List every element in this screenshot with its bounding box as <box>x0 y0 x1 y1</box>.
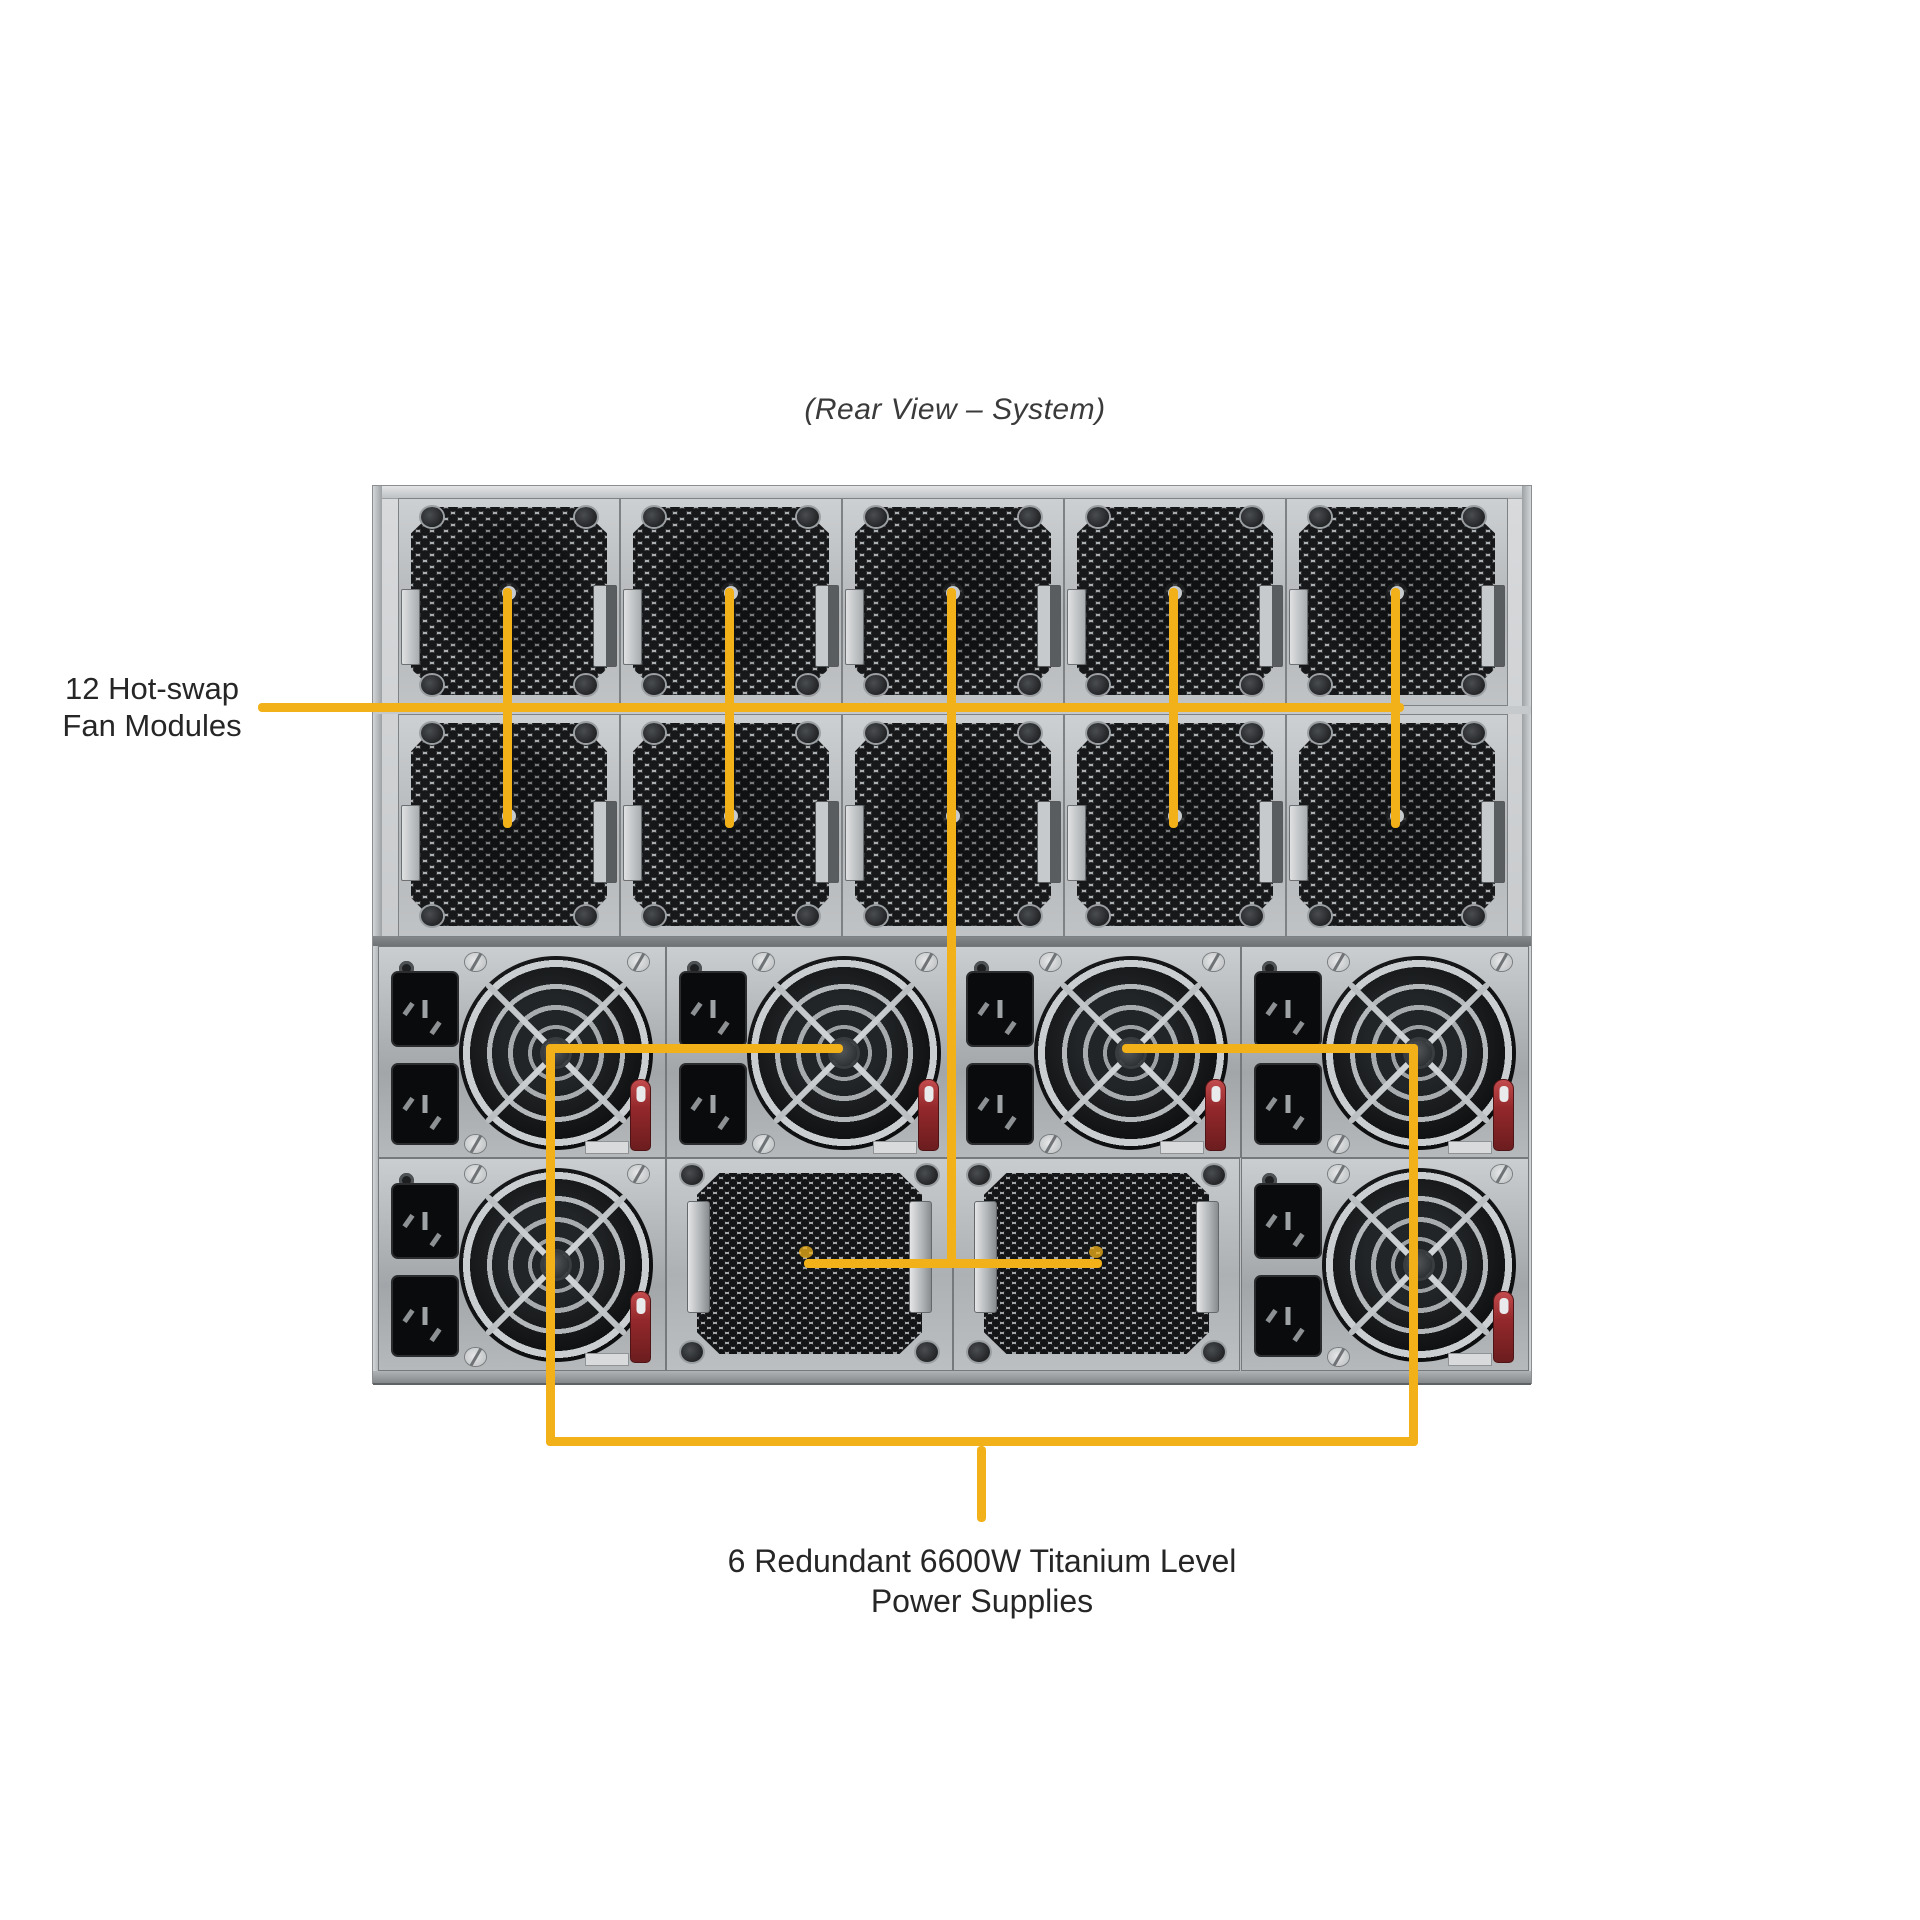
callout-psu-hline-right <box>1122 1044 1418 1053</box>
psu-fan <box>1322 1168 1516 1362</box>
screw-icon <box>968 1342 990 1362</box>
screw-icon <box>968 1165 990 1185</box>
screw-icon <box>643 723 665 743</box>
fan-modules-label-line2: Fan Modules <box>37 707 267 744</box>
power-inlet <box>391 1183 459 1259</box>
screw-icon <box>681 1342 703 1362</box>
fan-handle <box>1259 801 1283 883</box>
power-inlet <box>679 1063 747 1145</box>
fan-handle <box>1037 585 1061 667</box>
psu-release-tab <box>1493 1079 1514 1151</box>
psu-release-tab <box>630 1079 651 1151</box>
diagram-title: (Rear View – System) <box>560 393 1350 427</box>
screw-icon <box>1087 906 1109 926</box>
power-inlet <box>1254 1183 1322 1259</box>
fan-latch <box>1067 805 1086 881</box>
power-supply-module <box>1241 1158 1529 1371</box>
thumbscrew-icon <box>1328 1135 1349 1153</box>
power-inlet <box>1254 1063 1322 1145</box>
thumbscrew-icon <box>1328 953 1349 971</box>
screw-icon <box>643 507 665 527</box>
screw-icon <box>575 906 597 926</box>
screw-icon <box>1241 723 1263 743</box>
module-handle <box>1196 1201 1219 1313</box>
fan-latch <box>1289 589 1308 665</box>
screw-icon <box>681 1165 703 1185</box>
fan-handle <box>593 801 617 883</box>
callout-psu-vline-right <box>1409 1044 1418 1446</box>
screw-icon <box>1019 507 1041 527</box>
screw-icon <box>1019 675 1041 695</box>
rear-view-diagram-page: (Rear View – System) 12 Hot-swap Fan Mod… <box>0 0 1920 1920</box>
callout-fan-vline-2 <box>725 588 734 828</box>
psu-fan <box>459 956 653 1150</box>
callout-screw-dot-right <box>1089 1246 1103 1258</box>
fan-modules-label-line1: 12 Hot-swap <box>37 670 267 707</box>
psu-label-sticker <box>585 1353 629 1366</box>
module-handle <box>974 1201 997 1313</box>
callout-screw-dot-left <box>799 1246 813 1258</box>
screw-icon <box>1463 507 1485 527</box>
thumbscrew-icon <box>1491 1165 1512 1183</box>
screw-icon <box>1241 507 1263 527</box>
thumbscrew-icon <box>465 1348 486 1366</box>
psu-fan <box>459 1168 653 1362</box>
screw-icon <box>1203 1165 1225 1185</box>
power-inlet <box>391 1063 459 1145</box>
power-inlet <box>966 971 1034 1047</box>
thumbscrew-icon <box>1040 953 1061 971</box>
psu-label-sticker <box>873 1141 917 1154</box>
screw-icon <box>1309 507 1331 527</box>
screw-icon <box>1309 906 1331 926</box>
psu-label-sticker <box>1448 1353 1492 1366</box>
callout-fan-vline-1 <box>503 588 512 828</box>
fan-handle <box>1259 585 1283 667</box>
fan-handle <box>1037 801 1061 883</box>
thumbscrew-icon <box>753 953 774 971</box>
screw-icon <box>643 675 665 695</box>
fan-handle <box>815 801 839 883</box>
screw-icon <box>797 906 819 926</box>
screw-icon <box>1019 906 1041 926</box>
screw-icon <box>421 675 443 695</box>
screw-icon <box>643 906 665 926</box>
psu-fan <box>1034 956 1228 1150</box>
callout-middle-fans-connector <box>804 1259 1102 1268</box>
callout-fan-vline-3-long <box>947 588 956 1266</box>
screw-icon <box>575 675 597 695</box>
psu-fan <box>1322 956 1516 1150</box>
psu-release-tab <box>918 1079 939 1151</box>
module-handle <box>909 1201 932 1313</box>
fan-latch <box>845 805 864 881</box>
screw-icon <box>1309 723 1331 743</box>
power-inlet <box>391 1275 459 1357</box>
screw-icon <box>865 507 887 527</box>
fan-latch <box>1067 589 1086 665</box>
fan-handle <box>1481 801 1505 883</box>
callout-fan-vline-5 <box>1391 588 1400 828</box>
power-inlet <box>1254 1275 1322 1357</box>
screw-icon <box>865 723 887 743</box>
screw-icon <box>1463 675 1485 695</box>
thumbscrew-icon <box>628 1165 649 1183</box>
thumbscrew-icon <box>465 1165 486 1183</box>
screw-icon <box>1087 507 1109 527</box>
screw-icon <box>575 723 597 743</box>
thumbscrew-icon <box>628 953 649 971</box>
callout-psu-drop-vline <box>977 1446 986 1522</box>
fan-handle <box>815 585 839 667</box>
power-supplies-label-line2: Power Supplies <box>630 1581 1334 1621</box>
screw-icon <box>1019 723 1041 743</box>
screw-icon <box>575 507 597 527</box>
screw-icon <box>421 507 443 527</box>
screw-icon <box>1463 906 1485 926</box>
callout-psu-bracket-hline <box>546 1437 1418 1446</box>
screw-icon <box>1203 1342 1225 1362</box>
screw-icon <box>797 675 819 695</box>
fan-latch <box>623 805 642 881</box>
psu-release-tab <box>1205 1079 1226 1151</box>
screw-icon <box>421 906 443 926</box>
thumbscrew-icon <box>1491 953 1512 971</box>
screw-icon <box>1087 723 1109 743</box>
thumbscrew-icon <box>1328 1348 1349 1366</box>
fan-handle <box>1481 585 1505 667</box>
fan-latch <box>1289 805 1308 881</box>
fan-latch <box>623 589 642 665</box>
screw-icon <box>797 507 819 527</box>
callout-fan-hline <box>258 703 1404 712</box>
screw-icon <box>1087 675 1109 695</box>
thumbscrew-icon <box>1203 953 1224 971</box>
fan-latch <box>845 589 864 665</box>
thumbscrew-icon <box>465 1135 486 1153</box>
callout-psu-hline-left <box>549 1044 843 1053</box>
screw-icon <box>1241 906 1263 926</box>
thumbscrew-icon <box>753 1135 774 1153</box>
power-supplies-label-line1: 6 Redundant 6600W Titanium Level <box>630 1541 1334 1581</box>
psu-label-sticker <box>1448 1141 1492 1154</box>
screw-icon <box>916 1165 938 1185</box>
psu-label-sticker <box>585 1141 629 1154</box>
power-inlet <box>966 1063 1034 1145</box>
thumbscrew-icon <box>1040 1135 1061 1153</box>
screw-icon <box>797 723 819 743</box>
psu-label-sticker <box>1160 1141 1204 1154</box>
fan-latch <box>401 589 420 665</box>
power-inlet <box>1254 971 1322 1047</box>
screw-icon <box>865 675 887 695</box>
power-supply-module <box>378 1158 666 1371</box>
psu-release-tab <box>630 1291 651 1363</box>
screw-icon <box>1309 675 1331 695</box>
power-inlet <box>679 971 747 1047</box>
thumbscrew-icon <box>465 953 486 971</box>
fan-handle <box>593 585 617 667</box>
power-supplies-label: 6 Redundant 6600W Titanium Level Power S… <box>630 1541 1334 1621</box>
thumbscrew-icon <box>1328 1165 1349 1183</box>
psu-fan <box>747 956 941 1150</box>
callout-fan-vline-4 <box>1169 588 1178 828</box>
screw-icon <box>865 906 887 926</box>
module-handle <box>687 1201 710 1313</box>
psu-release-tab <box>1493 1291 1514 1363</box>
fan-latch <box>401 805 420 881</box>
screw-icon <box>916 1342 938 1362</box>
fan-modules-label: 12 Hot-swap Fan Modules <box>37 670 267 744</box>
power-inlet <box>391 971 459 1047</box>
callout-psu-vline-left <box>546 1044 555 1446</box>
screw-icon <box>421 723 443 743</box>
screw-icon <box>1463 723 1485 743</box>
screw-icon <box>1241 675 1263 695</box>
thumbscrew-icon <box>916 953 937 971</box>
